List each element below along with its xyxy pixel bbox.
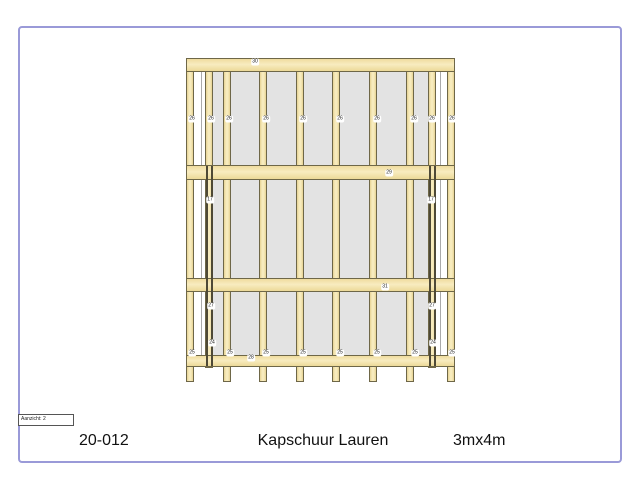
- drawing-title: Kapschuur Lauren: [258, 432, 389, 450]
- part-number-label: 26: [299, 116, 307, 123]
- project-number: 20-012: [79, 432, 129, 450]
- part-number-label: 24: [429, 340, 437, 347]
- view-label-box: Aanzicht: 2: [18, 414, 74, 426]
- drawing-size: 3mx4m: [453, 432, 505, 450]
- stud-post: [406, 58, 414, 382]
- wall-panel: [205, 72, 436, 355]
- part-number-label: 26: [448, 116, 456, 123]
- stud-post: [447, 58, 455, 382]
- part-number-label: 25: [448, 350, 456, 357]
- part-number-label: 29: [385, 170, 393, 177]
- part-number-label: 27: [207, 303, 215, 310]
- part-number-label: 30: [251, 59, 259, 66]
- title-block: 20-012 Kapschuur Lauren 3mx4m: [0, 432, 640, 454]
- part-number-label: 26: [262, 116, 270, 123]
- part-number-label: 25: [373, 350, 381, 357]
- part-number-label: 25: [262, 350, 270, 357]
- part-number-label: 26: [373, 116, 381, 123]
- part-number-label: 25: [299, 350, 307, 357]
- part-number-label: 28: [247, 355, 255, 362]
- part-number-label: 25: [336, 350, 344, 357]
- part-number-label: 25: [411, 350, 419, 357]
- part-number-label: 26: [188, 116, 196, 123]
- stud-post: [296, 58, 304, 382]
- part-number-label: 27: [428, 303, 436, 310]
- panel-edge-line: [440, 72, 441, 355]
- panel-edge-line: [201, 72, 202, 355]
- part-number-label: 26: [410, 116, 418, 123]
- part-number-label: 17: [427, 197, 435, 204]
- part-number-label: 26: [225, 116, 233, 123]
- horizontal-beam: [186, 355, 455, 367]
- horizontal-beam: [186, 278, 455, 292]
- frame-elevation-drawing: 3026262626262626262626291717312727242425…: [0, 0, 640, 480]
- stud-post: [332, 58, 340, 382]
- stud-post: [223, 58, 231, 382]
- view-label: Aanzicht: 2: [21, 416, 46, 422]
- part-number-label: 25: [188, 350, 196, 357]
- stud-post: [186, 58, 194, 382]
- horizontal-beam: [186, 58, 455, 72]
- part-number-label: 25: [226, 350, 234, 357]
- part-number-label: 24: [208, 340, 216, 347]
- part-number-label: 26: [207, 116, 215, 123]
- part-number-label: 31: [381, 284, 389, 291]
- part-number-label: 26: [336, 116, 344, 123]
- part-number-label: 17: [206, 197, 214, 204]
- stud-post: [259, 58, 267, 382]
- horizontal-beam: [186, 165, 455, 180]
- stud-post: [369, 58, 377, 382]
- part-number-label: 26: [428, 116, 436, 123]
